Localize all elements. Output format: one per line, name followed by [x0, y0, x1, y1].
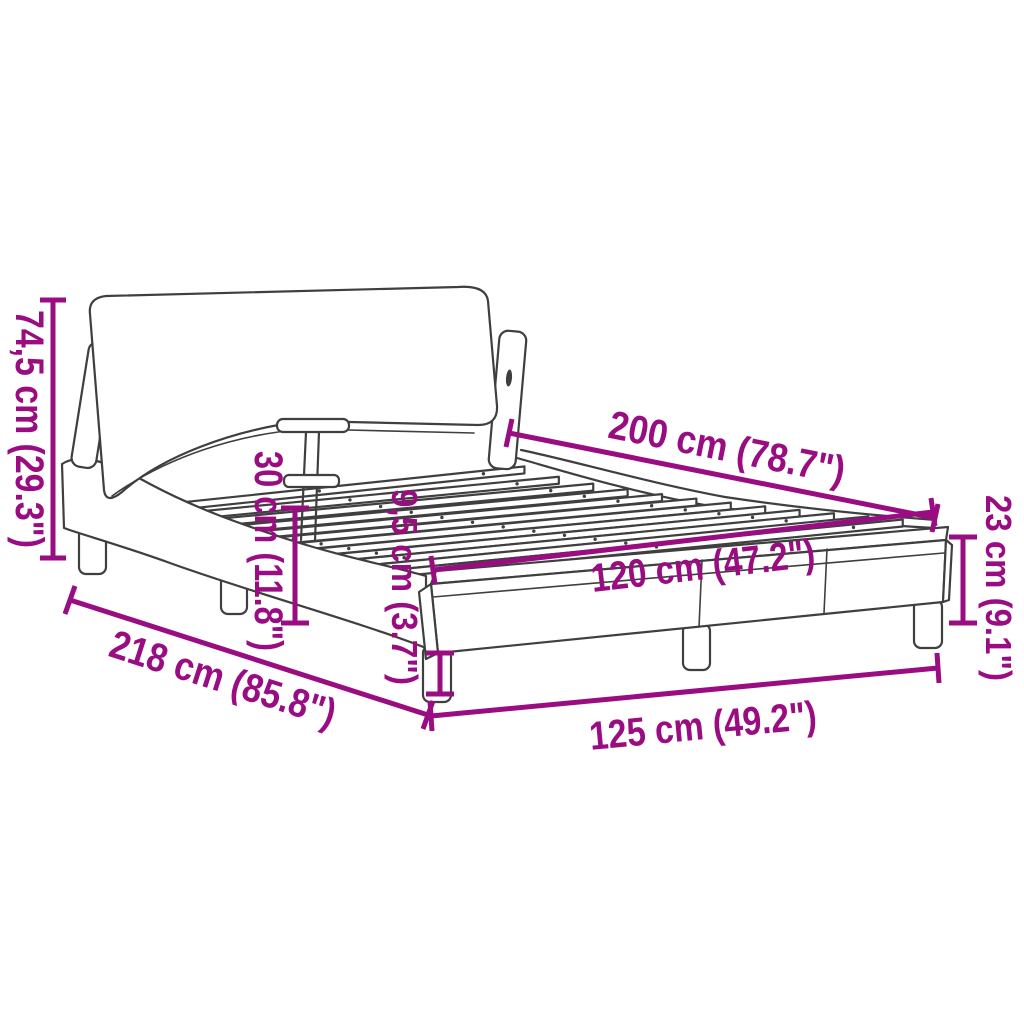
- slat-connector-dot: [717, 512, 720, 515]
- slat-connector-dot: [347, 547, 350, 550]
- cap: [931, 498, 935, 526]
- slat-connector-dot: [375, 551, 378, 554]
- cap: [430, 701, 432, 731]
- center-support-clamp-bar: [284, 475, 339, 487]
- slat-connector-dot: [563, 534, 566, 537]
- dimension-label-foot-height: 23 cm (9.1"): [978, 495, 1019, 681]
- bed-frame-diagram: 74,5 cm (29.3") 200 cm (78.7") 30 cm (11…: [0, 0, 1024, 1024]
- dimension-label-base-height: 30 cm (11.8"): [246, 451, 290, 651]
- slat-connector-dot: [532, 529, 535, 532]
- slat-connector-dot: [784, 519, 787, 522]
- slat-connector-dot: [348, 498, 351, 501]
- slat-connector-dot: [583, 495, 586, 498]
- slat-connector-dot: [593, 538, 596, 541]
- dimension-label-total-length: 218 cm (85.8"): [104, 622, 341, 736]
- center-support-top-bar: [277, 419, 349, 432]
- slat-connector-dot: [751, 516, 754, 519]
- slat-connector-dot: [515, 482, 518, 485]
- slat-connector-dot: [318, 489, 321, 492]
- front-leg-center: [683, 624, 710, 670]
- diagram-canvas: 74,5 cm (29.3") 200 cm (78.7") 30 cm (11…: [0, 0, 1024, 1024]
- dimension-foot-height: 23 cm (9.1"): [949, 495, 1019, 681]
- slat-connector-dot: [501, 525, 504, 528]
- slat-connector-dot: [650, 504, 653, 507]
- slat-connector-dot: [616, 500, 619, 503]
- slat-connector-dot: [379, 505, 382, 508]
- headboard: [90, 287, 497, 498]
- dimension-headboard-height: 74,5 cm (29.3"): [7, 300, 66, 558]
- slat-connector-dot: [482, 472, 485, 475]
- cap: [937, 653, 939, 683]
- slat-connector-dot: [684, 508, 687, 511]
- slat-connector-dot: [549, 489, 552, 492]
- slat-connector-dot: [852, 526, 855, 529]
- slat-connector-dot: [624, 541, 627, 544]
- dimension-label-total-width: 125 cm (49.2"): [587, 694, 818, 759]
- front-leg-right: [914, 600, 942, 648]
- slat-connector-dot: [471, 521, 474, 524]
- slat-connector-dot: [319, 542, 322, 545]
- slat-connector-dot: [440, 516, 443, 519]
- dimension-label-headboard-height: 74,5 cm (29.3"): [7, 310, 51, 548]
- dimension-label-leg-height: 9,5 cm (3.7"): [384, 489, 425, 685]
